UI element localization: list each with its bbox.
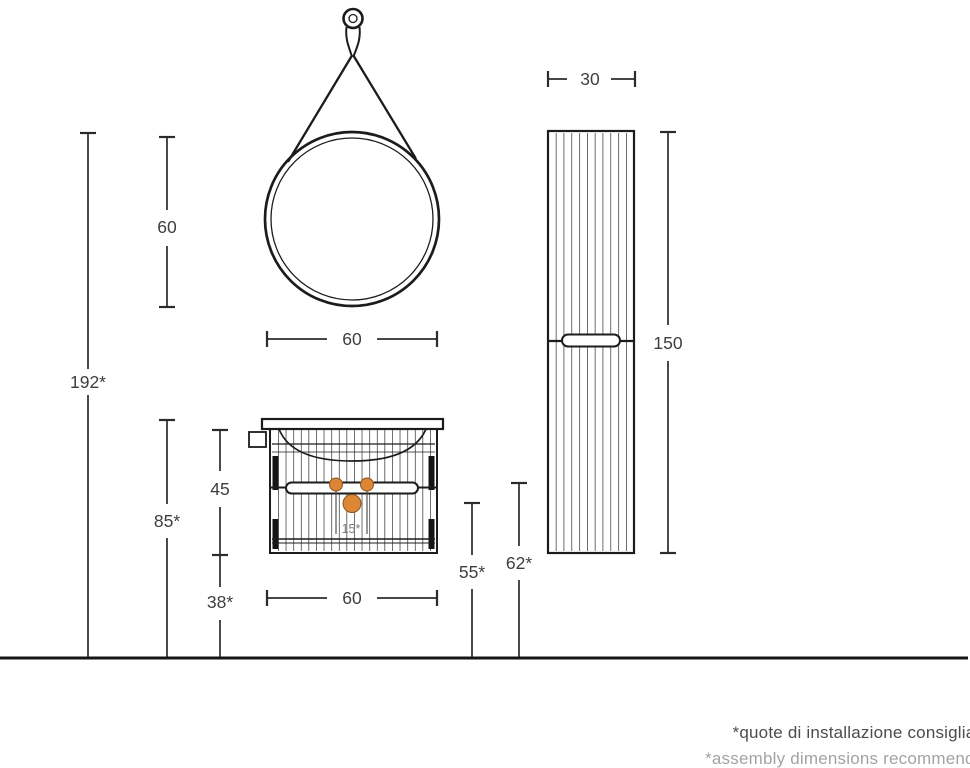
mirror-hook-ball <box>344 9 363 28</box>
dim-supply-height-label: 62* <box>506 553 532 573</box>
drawer-side-trim <box>429 456 435 490</box>
dim-vanity-width-label: 60 <box>342 588 362 608</box>
dim-column-height-label: 150 <box>653 333 682 353</box>
dim-worktop-height-label: 85* <box>154 511 180 531</box>
drawer-side-trim <box>273 519 279 549</box>
dim-worktop-height <box>159 420 175 657</box>
dim-mirror-height-label: 60 <box>157 217 177 237</box>
wall-bracket <box>249 432 266 447</box>
water-supply-point <box>330 478 343 491</box>
column-handle <box>562 335 620 347</box>
dim-connection-spacing-label: 15* <box>342 522 361 536</box>
dim-vanity-body-label: 45 <box>210 479 229 499</box>
mirror-frame-outer <box>265 132 439 306</box>
drain-point <box>343 495 361 513</box>
dim-total-height-label: 192* <box>70 372 106 392</box>
installation-diagram: 15* <box>0 0 970 768</box>
column-cabinet-drawing <box>548 131 634 553</box>
drawer-handle <box>286 483 418 494</box>
drawer-side-trim <box>429 519 435 549</box>
water-supply-point <box>361 478 374 491</box>
vanity-drawing: 15* <box>249 419 443 553</box>
dim-under-clearance-label: 38* <box>207 592 233 612</box>
vanity-worktop <box>262 419 443 429</box>
technical-drawing: 15* <box>0 0 970 768</box>
dim-drain-height-label: 55* <box>459 562 485 582</box>
mirror-hook-stem <box>346 27 360 56</box>
mirror-frame-inner <box>271 138 433 300</box>
footnote-italian: *quote di installazione consigliate <box>733 723 970 743</box>
dim-mirror-width-label: 60 <box>342 329 362 349</box>
dim-column-width-label: 30 <box>580 69 600 89</box>
mirror-hook-ball-inner <box>349 15 357 23</box>
footnote-english: *assembly dimensions recommended <box>705 749 970 768</box>
mirror-drawing <box>265 9 439 306</box>
drawer-side-trim <box>273 456 279 490</box>
